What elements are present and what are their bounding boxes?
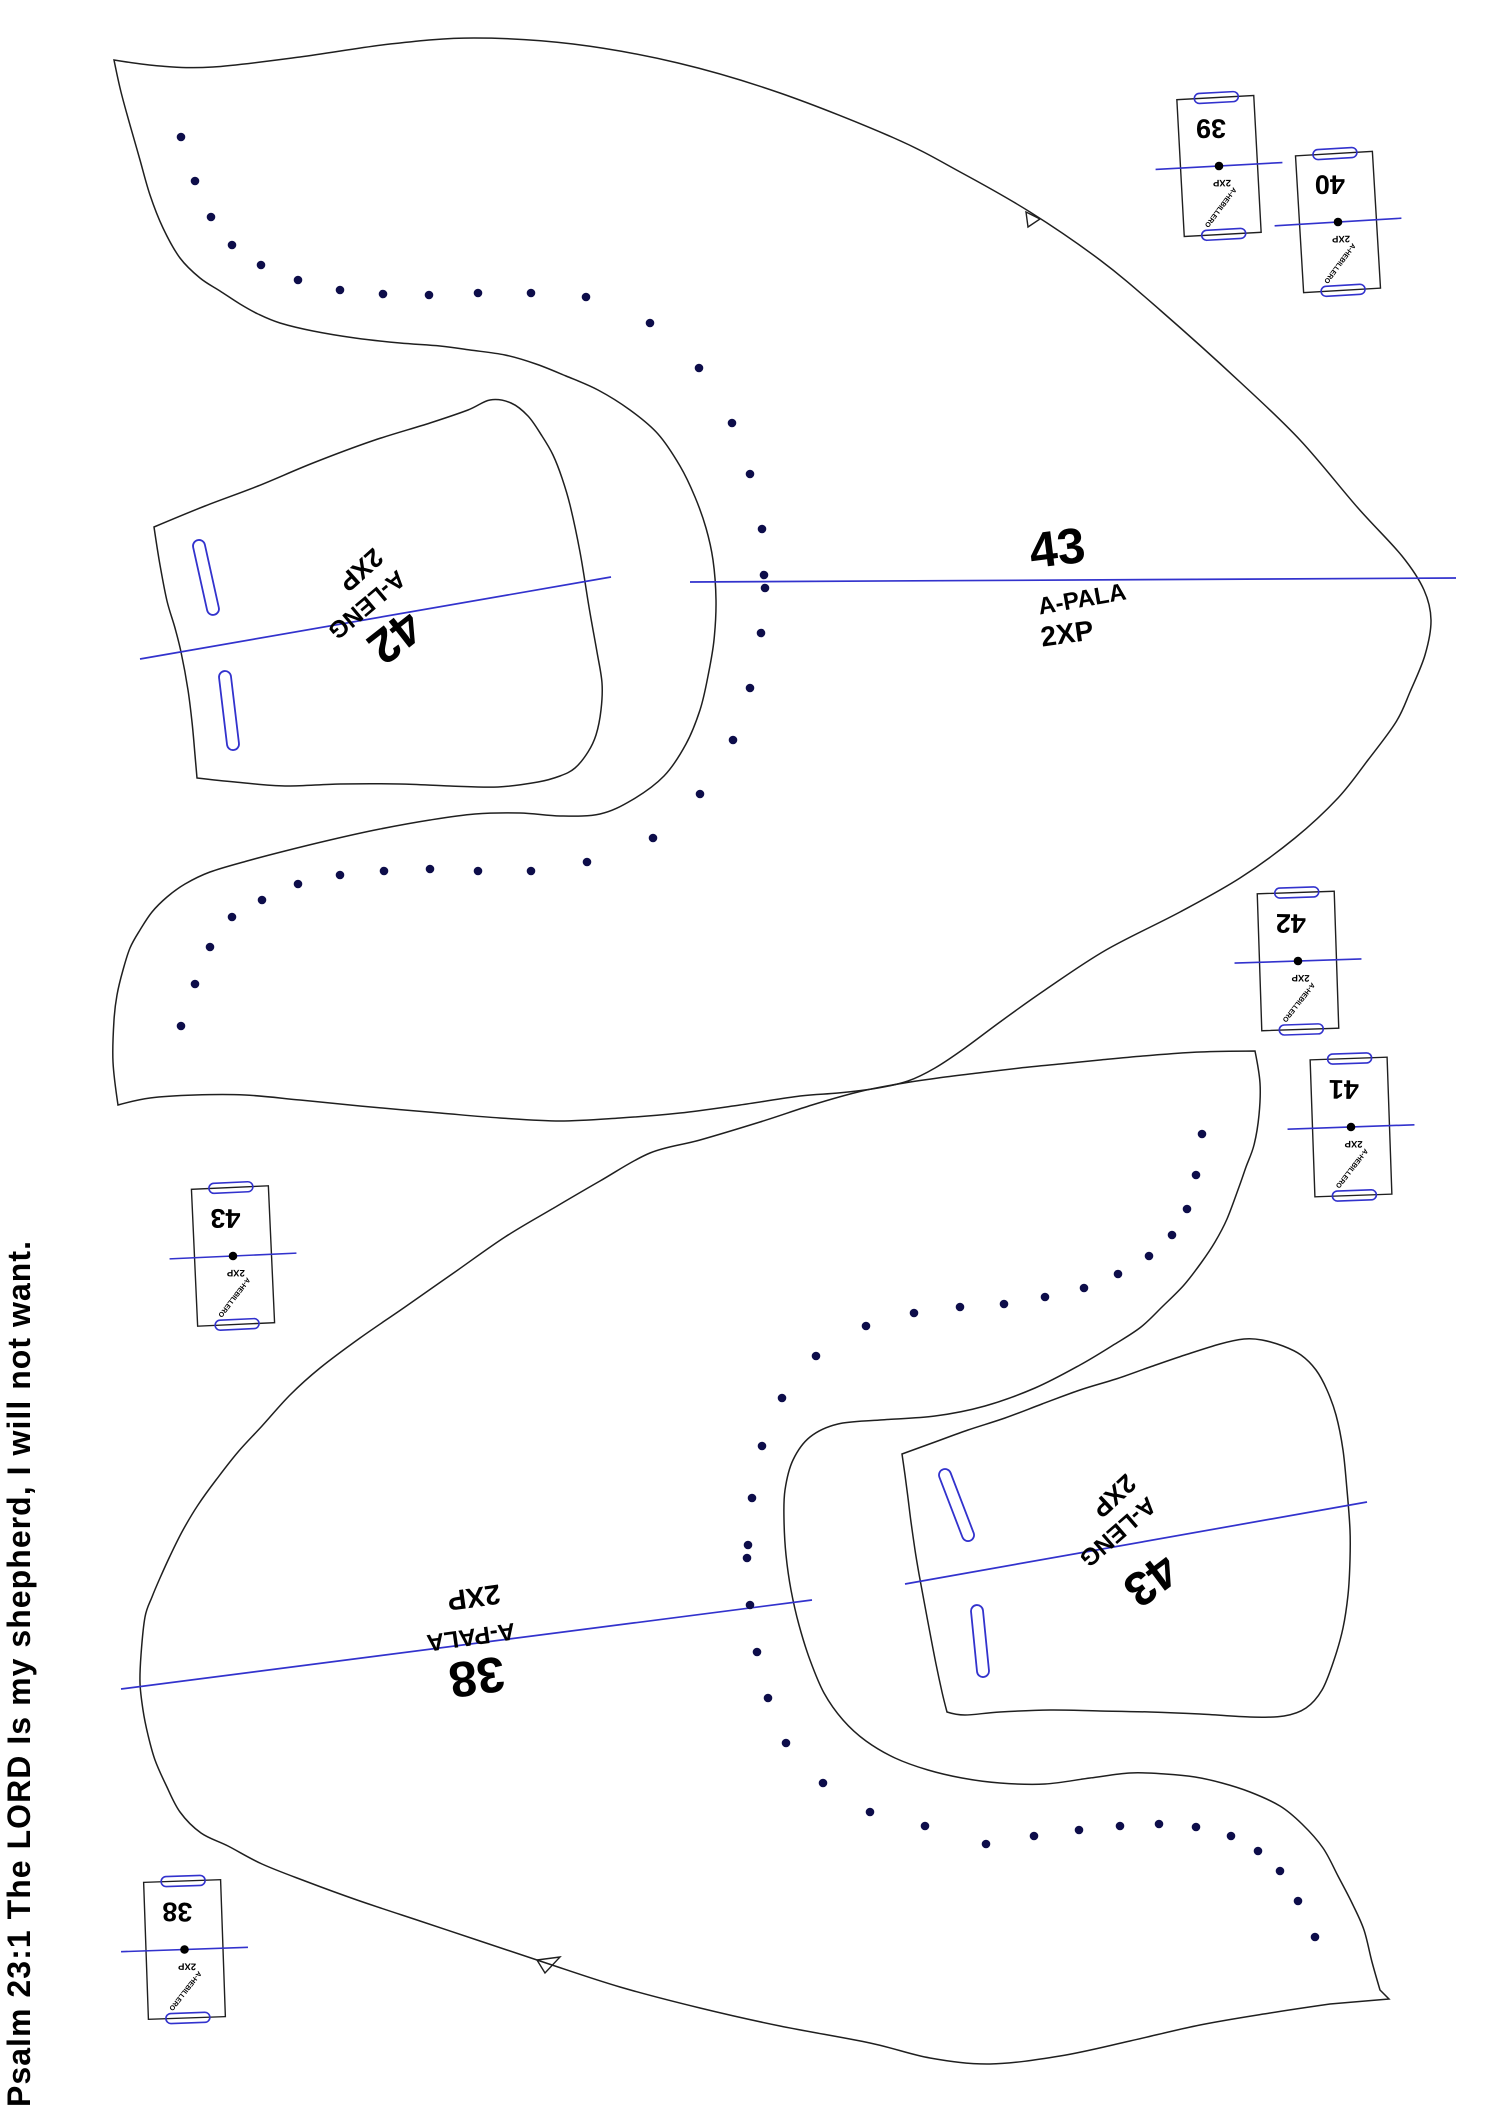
svg-text:41: 41 — [1328, 1074, 1359, 1105]
svg-text:42: 42 — [1276, 908, 1307, 939]
svg-text:43: 43 — [210, 1203, 240, 1233]
svg-text:2XP: 2XP — [1331, 233, 1350, 244]
svg-text:40: 40 — [1315, 169, 1345, 199]
svg-text:43: 43 — [1026, 517, 1088, 579]
svg-text:Psalm 23:1 The LORD Is my shep: Psalm 23:1 The LORD Is my shepherd, I wi… — [1, 1241, 37, 2107]
svg-text:2XP: 2XP — [1291, 972, 1310, 983]
svg-text:38: 38 — [162, 1896, 193, 1927]
svg-text:2XP: 2XP — [1212, 177, 1231, 188]
svg-text:2XP: 2XP — [177, 1960, 196, 1971]
svg-text:38: 38 — [445, 1645, 508, 1708]
svg-text:2XP: 2XP — [1344, 1138, 1363, 1149]
svg-text:2XP: 2XP — [226, 1267, 245, 1278]
svg-text:39: 39 — [1196, 113, 1226, 143]
